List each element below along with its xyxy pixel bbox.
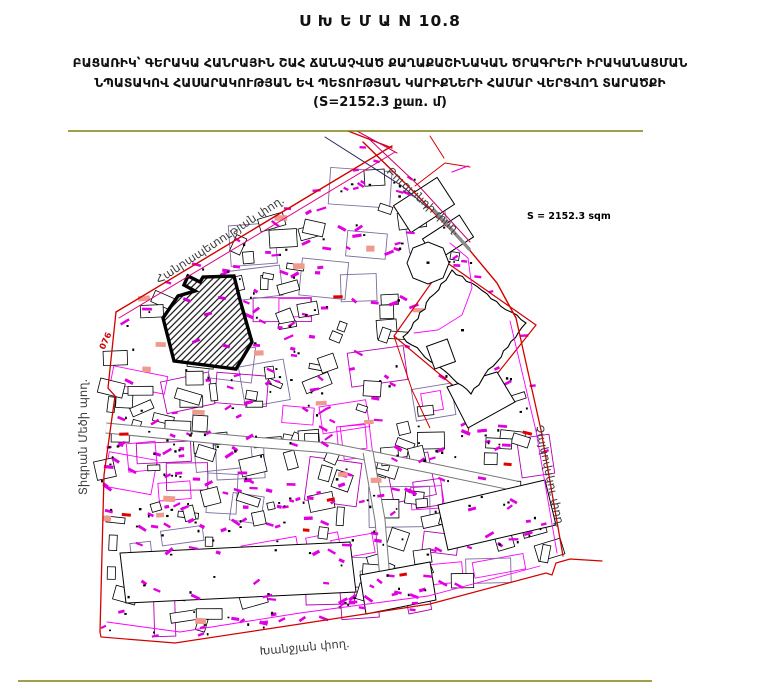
area-line: (S=2152.3 քառ. մ) — [0, 95, 760, 110]
scheme-header: Ս Խ Ե Մ Ա N 10.8 ԲԱՑԱՌԻԿ՝ ԳԵՐԱԿԱ ՀԱՆՐԱՅԻ… — [0, 0, 760, 110]
area-value-label: S = 2152.3 sqm — [527, 211, 611, 222]
scheme-page: { "header": { "title": "Ս Խ Ե Մ Ա N 10.8… — [0, 0, 760, 690]
page-title-text: Ս Խ Ե Մ Ա N 10.8 — [299, 12, 461, 30]
page-title: Ս Խ Ե Մ Ա N 10.8 — [0, 12, 760, 30]
street-label-khanjyan: Խանջյան փող. — [259, 636, 350, 658]
subtitle-line-2: ՆՊԱՏԱԿՈՎ ՀԱՍԱՐԱԿՈՒԹՅԱՆ ԵՎ ՊԵՏՈՒԹՅԱՆ ԿԱՐԻ… — [0, 74, 760, 94]
scheme-subtitle: ԲԱՑԱՌԻԿ՝ ԳԵՐԱԿԱ ՀԱՆՐԱՅԻՆ ՇԱՀ ՃԱՆԱՉՎԱԾ ՔԱ… — [0, 54, 760, 94]
acquisition-area-hatched — [163, 276, 252, 369]
map-landmarks — [163, 242, 536, 432]
street-label-republic: Հանրապետության փող. — [153, 193, 287, 287]
street-label-tigran-mets: Տիգրան Մեծի պող. — [76, 379, 90, 495]
subtitle-line-1: ԲԱՑԱՌԻԿ՝ ԳԵՐԱԿԱ ՀԱՆՐԱՅԻՆ ՇԱՀ ՃԱՆԱՉՎԱԾ ՔԱ… — [0, 54, 760, 74]
